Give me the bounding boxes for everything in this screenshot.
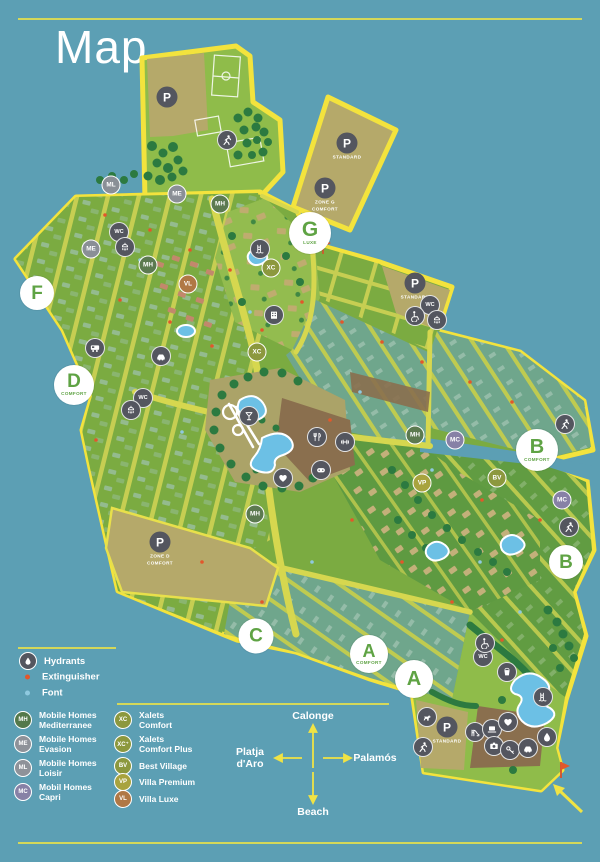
- pond-vl: [177, 325, 195, 337]
- runner-icon-4[interactable]: [413, 737, 433, 757]
- caravan-icon[interactable]: [85, 338, 105, 358]
- bucket-icon[interactable]: [497, 662, 517, 682]
- shower-icon-3[interactable]: [121, 400, 141, 420]
- compass-south-label: Beach: [297, 806, 329, 818]
- parking-area-zone-g: [293, 97, 396, 230]
- shower-icon-2[interactable]: [427, 310, 447, 330]
- map-page: Map: [0, 0, 600, 862]
- first-aid-icon-2[interactable]: [498, 712, 518, 732]
- zone-badge-a-comfort[interactable]: ACOMFORT: [350, 635, 388, 673]
- legend-item-mh: MH Mobile HomesMediterranee: [14, 710, 97, 730]
- entrance-arrow: [553, 784, 582, 812]
- badge-vp[interactable]: VP: [413, 474, 432, 493]
- parking-badge-zone-g[interactable]: PZONE G COMFORT: [315, 178, 336, 199]
- zone-badge-b-comfort[interactable]: BCOMFORT: [516, 429, 558, 471]
- wheelchair-icon-2[interactable]: [475, 633, 495, 653]
- extinguisher-dot-icon: [25, 675, 30, 680]
- shower-icon[interactable]: [115, 237, 135, 257]
- pool-bv-2: [501, 535, 525, 555]
- legend-divider: [18, 647, 116, 649]
- zone-badge-g[interactable]: GLUXE: [289, 212, 331, 254]
- map-terrain: [0, 0, 600, 862]
- parking-badge-standard-north[interactable]: PSTANDARD: [337, 133, 358, 154]
- compass-west-label: Platja d'Aro: [226, 746, 274, 770]
- zone-badge-a[interactable]: A: [395, 660, 433, 698]
- badge-mc-2[interactable]: MC: [553, 491, 572, 510]
- badge-mc[interactable]: MC: [446, 431, 465, 450]
- badge-mh[interactable]: MH: [211, 195, 230, 214]
- legend-hydrants: Hydrants: [19, 652, 85, 670]
- parking-badge-entrance[interactable]: PSTANDARD: [437, 717, 458, 738]
- pool-bv-1: [426, 542, 449, 561]
- compass-arrows: [275, 725, 351, 803]
- wheelchair-icon[interactable]: [405, 306, 425, 326]
- badge-mh-3[interactable]: MH: [406, 426, 425, 445]
- gamepad-icon[interactable]: [311, 460, 331, 480]
- legend-font: Font: [19, 688, 63, 699]
- parking-badge-zone-d[interactable]: PZONE D COMFORT: [150, 532, 171, 553]
- legend-item-vl: VL Villa Luxe: [114, 790, 179, 808]
- compass-north-label: Calonge: [292, 710, 333, 722]
- key-icon[interactable]: [500, 740, 520, 760]
- pool-ladder-icon[interactable]: [250, 239, 270, 259]
- legend-item-me: ME Mobile HomesEvasion: [14, 734, 97, 754]
- legend-item-vp: VP Villa Premium: [114, 773, 195, 791]
- waterslide-icon[interactable]: [533, 687, 553, 707]
- legend-extinguisher: Extinguisher: [19, 672, 100, 683]
- badge-xc[interactable]: XC: [262, 259, 281, 278]
- badge-ml[interactable]: ML: [102, 176, 121, 195]
- restaurant-icon[interactable]: [307, 427, 327, 447]
- badge-me-2[interactable]: ME: [82, 240, 101, 259]
- legend-item-xc-plus: XC⁺ XaletsComfort Plus: [114, 734, 192, 754]
- legend-item-ml: ML Mobile HomesLoisir: [14, 758, 97, 778]
- badge-xc-2[interactable]: XC: [248, 343, 267, 362]
- badge-me[interactable]: ME: [168, 185, 187, 204]
- hydrant-icon-entrance[interactable]: [537, 727, 557, 747]
- car-icon-2[interactable]: [518, 738, 538, 758]
- badge-vl[interactable]: VL: [179, 275, 198, 294]
- zone-badge-b[interactable]: B: [549, 545, 583, 579]
- zone-badge-c[interactable]: C: [239, 619, 274, 654]
- gym-icon[interactable]: [335, 432, 355, 452]
- compass-east-label: Palamós: [353, 752, 396, 764]
- zone-badge-d[interactable]: DCOMFORT: [54, 365, 94, 405]
- hydrant-icon: [19, 652, 37, 670]
- first-aid-icon[interactable]: [273, 468, 293, 488]
- parking-badge-standard-east[interactable]: PSTANDARD: [405, 273, 426, 294]
- badge-mh-4[interactable]: MH: [246, 505, 265, 524]
- building-icon[interactable]: [264, 305, 284, 325]
- legend-item-mc: MC Mobil HomesCapri: [14, 782, 92, 802]
- cocktail-icon[interactable]: [239, 406, 259, 426]
- compass-divider: [117, 703, 389, 705]
- badge-bv[interactable]: BV: [488, 469, 507, 488]
- zone-badge-f[interactable]: F: [20, 276, 54, 310]
- font-dot-icon: [25, 691, 30, 696]
- legend-item-xc: XC XaletsComfort: [114, 710, 172, 730]
- runner-icon[interactable]: [217, 130, 237, 150]
- badge-mh-2[interactable]: MH: [139, 256, 158, 275]
- dog-area-icon[interactable]: [417, 707, 437, 727]
- runner-icon-3[interactable]: [559, 517, 579, 537]
- car-icon[interactable]: [151, 346, 171, 366]
- parking-badge-top[interactable]: P: [157, 87, 178, 108]
- runner-icon-2[interactable]: [555, 414, 575, 434]
